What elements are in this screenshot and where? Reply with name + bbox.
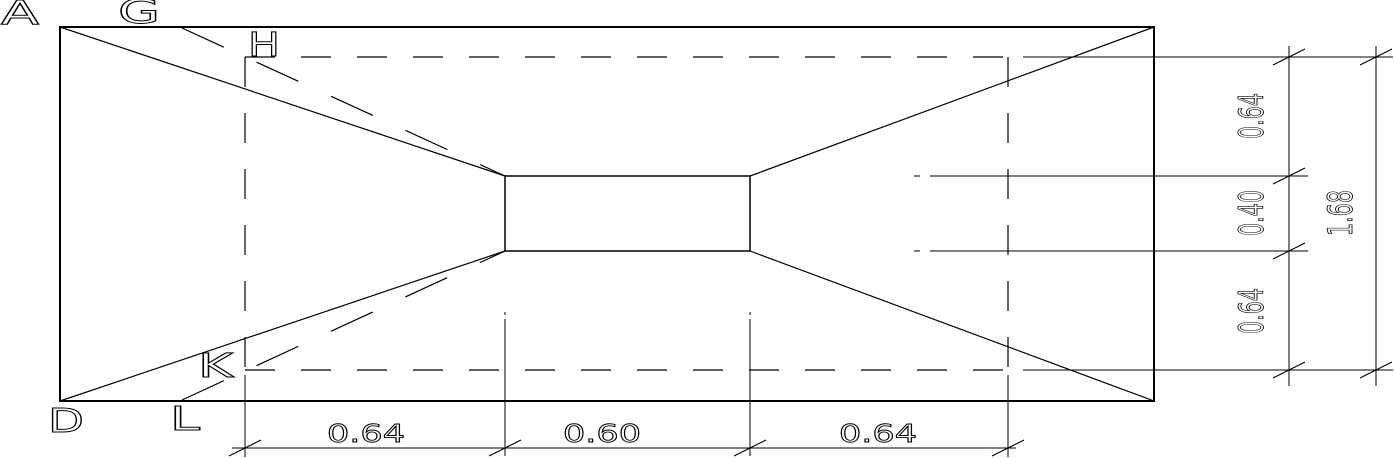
point-label-l: L bbox=[170, 399, 201, 438]
cad-canvas: A G H D K L 0.64 0.60 0.64 0.64 0.40 0.6… bbox=[0, 0, 1394, 458]
dim-label-right-total: 1.68 bbox=[1321, 190, 1361, 236]
point-label-a: A bbox=[1, 0, 40, 32]
point-label-d: D bbox=[48, 401, 84, 440]
slope-diagonal-top-right bbox=[750, 27, 1154, 176]
point-label-g: G bbox=[118, 0, 160, 31]
point-label-k: K bbox=[198, 346, 235, 385]
footing-plan-drawing: A G H D K L 0.64 0.60 0.64 0.64 0.40 0.6… bbox=[0, 0, 1394, 458]
dim-label-right-middle: 0.40 bbox=[1232, 190, 1272, 236]
dim-label-bottom-center: 0.60 bbox=[563, 419, 641, 448]
slope-diagonal-bottom-left bbox=[60, 251, 505, 401]
dim-label-bottom-left: 0.64 bbox=[327, 419, 405, 448]
hidden-slope-diagonal-top bbox=[182, 28, 505, 176]
slope-diagonal-top-left bbox=[60, 27, 505, 176]
dim-label-right-bottom: 0.64 bbox=[1232, 288, 1272, 334]
dimension-ticks bbox=[229, 49, 1392, 456]
slope-diagonal-bottom-right bbox=[750, 251, 1154, 401]
bottom-dimension-labels: 0.64 0.60 0.64 bbox=[327, 419, 917, 448]
slope-edge-diagonals bbox=[60, 27, 1154, 401]
dim-label-bottom-right: 0.64 bbox=[839, 419, 917, 448]
dim-label-right-top: 0.64 bbox=[1232, 93, 1272, 139]
dimension-lines bbox=[232, 46, 1376, 448]
hidden-edge-dashed-rectangle bbox=[245, 57, 1008, 370]
outer-footing-rectangle bbox=[60, 27, 1154, 401]
column-rectangle bbox=[505, 176, 750, 251]
point-label-h: H bbox=[248, 25, 280, 64]
right-dimension-labels: 0.64 0.40 0.64 1.68 bbox=[1232, 93, 1361, 334]
